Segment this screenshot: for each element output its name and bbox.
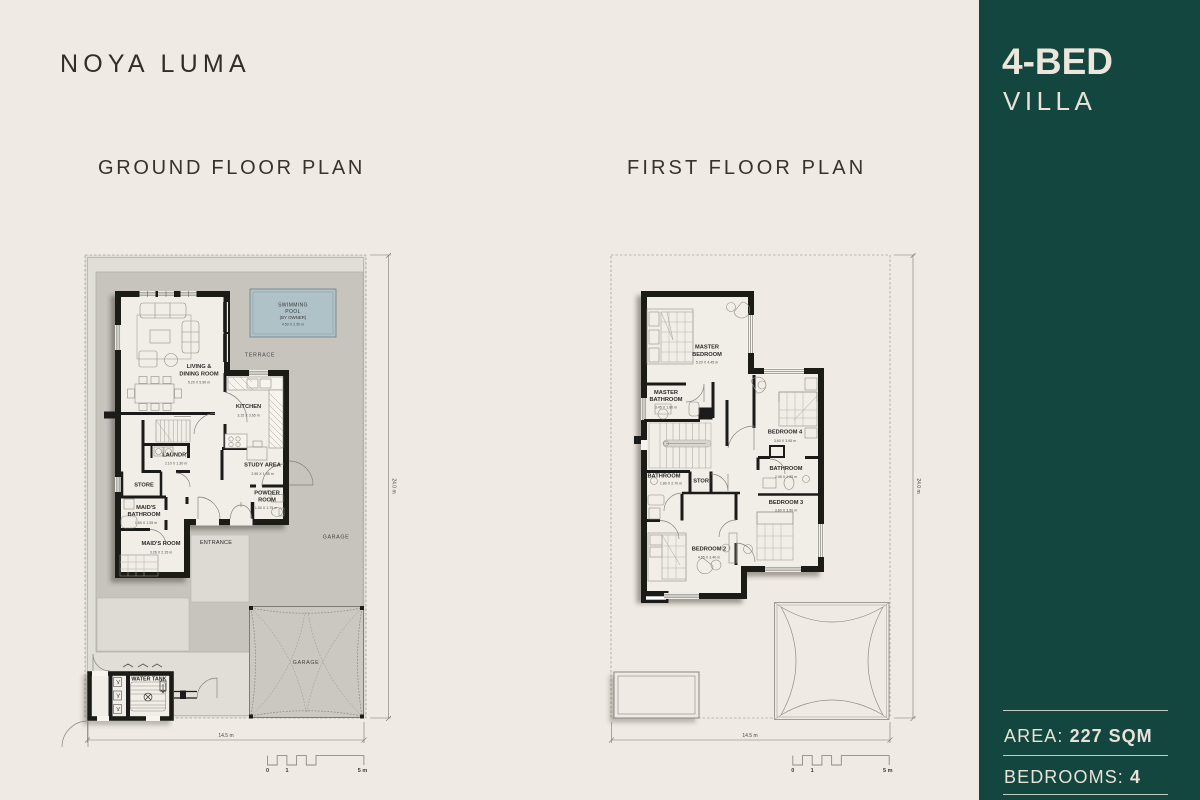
svg-text:POWDER: POWDER <box>254 491 280 497</box>
svg-text:DINING ROOM: DINING ROOM <box>179 372 218 378</box>
svg-text:5 m: 5 m <box>358 768 368 774</box>
svg-text:ENTRANCE: ENTRANCE <box>200 540 232 546</box>
svg-text:4.50 X 2.50 m: 4.50 X 2.50 m <box>282 323 304 327</box>
svg-text:LAUNDRY: LAUNDRY <box>162 453 190 459</box>
svg-text:0: 0 <box>266 768 269 774</box>
svg-text:STORE: STORE <box>134 483 154 489</box>
svg-text:MASTER: MASTER <box>654 390 678 396</box>
svg-text:2.45 X 1.85 m: 2.45 X 1.85 m <box>775 475 797 479</box>
svg-text:5.20 X 4.45 m: 5.20 X 4.45 m <box>696 361 718 365</box>
svg-text:14.5 m: 14.5 m <box>742 733 757 739</box>
svg-text:3.60 X 3.50 m: 3.60 X 3.50 m <box>775 509 797 513</box>
svg-text:BATHROOM: BATHROOM <box>649 397 682 403</box>
svg-text:1: 1 <box>285 768 288 774</box>
svg-text:14.5 m: 14.5 m <box>218 733 233 739</box>
svg-text:MASTER: MASTER <box>695 345 719 351</box>
svg-text:GARAGE: GARAGE <box>293 660 320 666</box>
svg-text:BATHROOM: BATHROOM <box>127 512 160 518</box>
svg-text:GARAGE: GARAGE <box>323 535 350 541</box>
svg-text:1.55 X 1.55 m: 1.55 X 1.55 m <box>135 521 157 525</box>
svg-text:STORE: STORE <box>693 478 713 484</box>
svg-text:LIVING &: LIVING & <box>187 364 212 370</box>
svg-text:SWIMMING: SWIMMING <box>278 303 308 309</box>
svg-text:3.60 X 3.65 m: 3.60 X 3.65 m <box>774 439 796 443</box>
svg-text:BEDROOM 3: BEDROOM 3 <box>769 500 803 506</box>
svg-text:MAID'S ROOM: MAID'S ROOM <box>142 541 181 547</box>
svg-text:3.26 X 2.15 m: 3.26 X 2.15 m <box>150 551 172 555</box>
svg-text:MAID'S: MAID'S <box>136 505 156 511</box>
svg-text:1: 1 <box>811 768 814 774</box>
svg-text:BEDROOM 2: BEDROOM 2 <box>692 547 726 553</box>
svg-text:BATHROOM: BATHROOM <box>647 474 680 480</box>
svg-text:3.15 X 3.65 m: 3.15 X 3.65 m <box>237 414 259 418</box>
svg-text:0: 0 <box>791 768 794 774</box>
svg-text:BEDROOM: BEDROOM <box>692 352 722 358</box>
svg-text:(BY OWNER): (BY OWNER) <box>280 315 307 320</box>
svg-text:KITCHEN: KITCHEN <box>236 404 261 410</box>
svg-text:5.20 X 5.90 m: 5.20 X 5.90 m <box>188 381 210 385</box>
svg-text:3.45 X 1.80 m: 3.45 X 1.80 m <box>655 406 677 410</box>
svg-text:1.80 X 2.70 m: 1.80 X 2.70 m <box>660 482 682 486</box>
svg-text:WATER TANK: WATER TANK <box>131 677 166 683</box>
svg-text:STUDY AREA: STUDY AREA <box>244 463 281 469</box>
svg-text:2.95 X 1.95 m: 2.95 X 1.95 m <box>251 472 273 476</box>
svg-text:24.0 m: 24.0 m <box>391 478 397 493</box>
svg-text:24.0 m: 24.0 m <box>915 478 921 493</box>
svg-text:5 m: 5 m <box>883 768 893 774</box>
svg-text:ROOM: ROOM <box>258 498 276 504</box>
svg-text:2.10 X 1.30 m: 2.10 X 1.30 m <box>165 462 187 466</box>
svg-text:BATHROOM: BATHROOM <box>769 466 802 472</box>
svg-text:4.65 X 3.40 m: 4.65 X 3.40 m <box>698 556 720 560</box>
svg-text:1.50 X 1.75 m: 1.50 X 1.75 m <box>255 506 277 510</box>
svg-text:BEDROOM 4: BEDROOM 4 <box>768 430 803 436</box>
svg-text:TERRACE: TERRACE <box>245 353 275 359</box>
